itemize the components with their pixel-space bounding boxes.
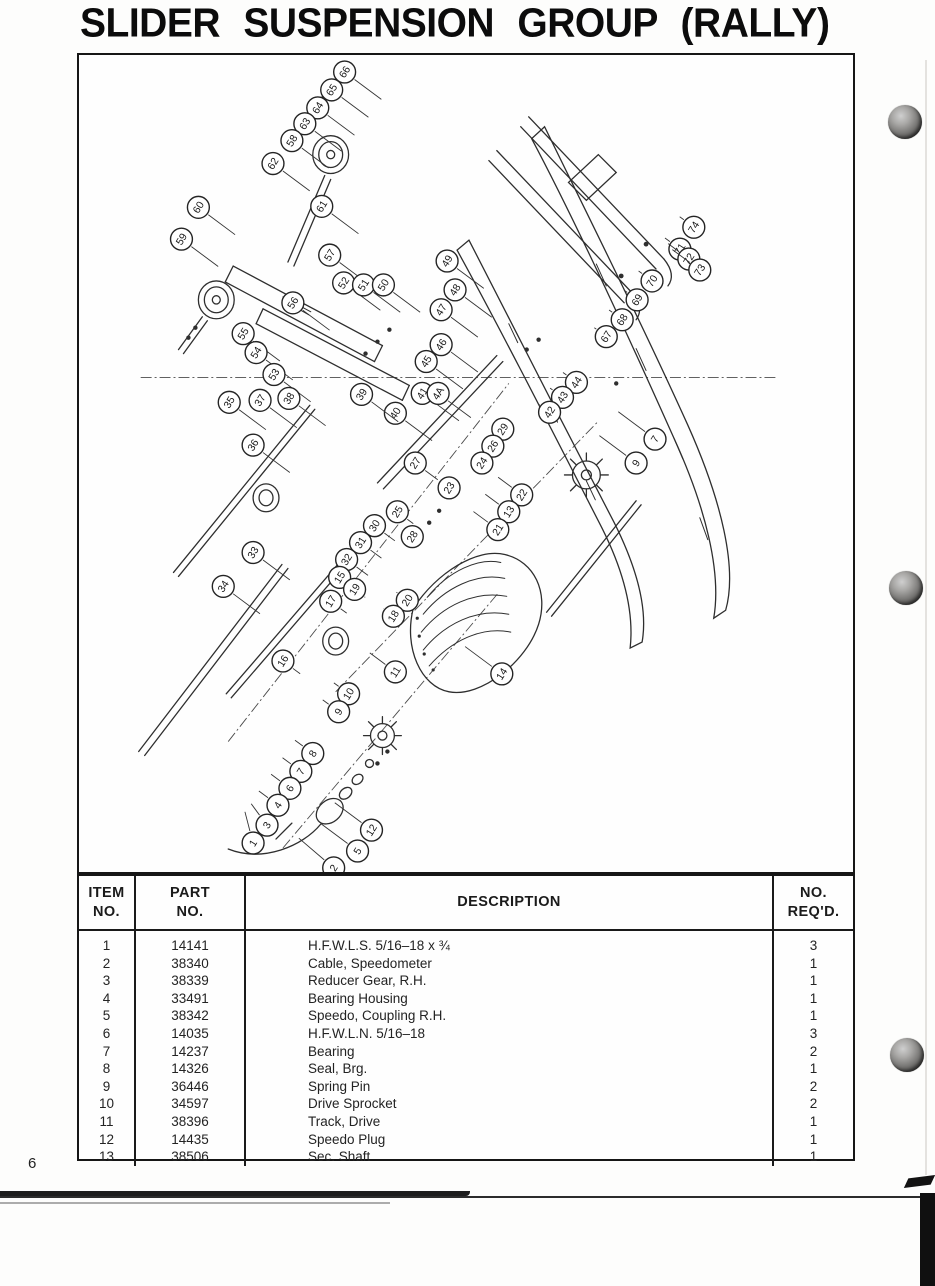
callout-leader-line (473, 512, 487, 523)
cell-req: 1 (773, 1007, 853, 1025)
cell-part: 14035 (135, 1025, 245, 1043)
callout-leader-line (239, 410, 266, 430)
cell-description: Bearing Housing (245, 990, 773, 1008)
cell-item: 8 (79, 1060, 135, 1078)
cell-item: 5 (79, 1007, 135, 1025)
table-row: 614035H.F.W.L.N. 5/16–183 (79, 1025, 853, 1043)
cell-item: 4 (79, 990, 135, 1008)
callout-leader-line (594, 328, 596, 329)
callout-leader-line (451, 352, 478, 372)
cell-req: 1 (773, 990, 853, 1008)
cell-description: Drive Sprocket (245, 1095, 773, 1113)
callout-leader-line (609, 310, 612, 312)
cell-req: 1 (773, 1113, 853, 1131)
callout-leader-line (342, 97, 369, 117)
cell-req: 2 (773, 1043, 853, 1061)
callout-leader-line (665, 238, 670, 242)
callout-leader-line (332, 214, 359, 234)
cell-description: Speedo Plug (245, 1131, 773, 1149)
callout-leader-line (299, 838, 324, 860)
callout-leader-line (263, 560, 290, 580)
table-row: 338339Reducer Gear, R.H.1 (79, 972, 853, 990)
cell-item: 12 (79, 1131, 135, 1149)
callout-leader-line (323, 700, 329, 704)
header-description: DESCRIPTION (245, 876, 773, 930)
page-title: SLIDER SUSPENSION GROUP (RALLY) (80, 1, 880, 47)
callout-leader-line (618, 412, 645, 432)
callout-leader-line (396, 592, 397, 593)
cell-req: 2 (773, 1078, 853, 1096)
cell-description: Spring Pin (245, 1078, 773, 1096)
callout-leader-line (370, 550, 381, 558)
callout-leader-line (283, 758, 291, 764)
cell-part: 38396 (135, 1113, 245, 1131)
callout-leader-line (465, 647, 492, 667)
cell-req: 2 (773, 1095, 853, 1113)
callout-leader-line (425, 470, 438, 479)
callout-leader-line (393, 292, 420, 312)
callout-leader-line (599, 436, 626, 456)
cell-req: 1 (773, 972, 853, 990)
cell-item: 9 (79, 1078, 135, 1096)
callout-leader-line (271, 774, 280, 781)
callout-leader-line (355, 79, 382, 99)
cell-part: 34597 (135, 1095, 245, 1113)
cell-item: 7 (79, 1043, 135, 1061)
callout-leader-line (245, 812, 250, 831)
cell-item: 10 (79, 1095, 135, 1113)
cell-req: 3 (773, 1025, 853, 1043)
callout-leader-line (334, 683, 339, 686)
callout-leader-line (639, 271, 642, 273)
callout-leader-line (208, 215, 235, 235)
callout-leader-line (341, 609, 347, 613)
cell-part: 36446 (135, 1078, 245, 1096)
cell-description: H.F.W.L.S. 5/16–18 x ¾ (245, 930, 773, 955)
parts-table: ITEMNO. PARTNO. DESCRIPTION NO.REQ'D. 11… (77, 874, 855, 1161)
scan-corner-bar (920, 1193, 935, 1286)
callout-leader-line (270, 408, 297, 428)
cell-part: 14141 (135, 930, 245, 955)
cell-description: Cable, Speedometer (245, 955, 773, 973)
table-row: 1214435Speedo Plug1 (79, 1131, 853, 1149)
callout-leader-line (357, 567, 368, 575)
table-row: 433491Bearing Housing1 (79, 990, 853, 1008)
scan-bottom-line (0, 1202, 390, 1204)
cell-req: 3 (773, 930, 853, 955)
exploded-diagram-svg: 6665646358626160595756555453525150494847… (79, 55, 853, 872)
table-row: 1138396Track, Drive1 (79, 1113, 853, 1131)
cell-item: 11 (79, 1113, 135, 1131)
callout-leader-line (295, 740, 303, 746)
cell-part: 33491 (135, 990, 245, 1008)
table-row: 538342Speedo, Coupling R.H.1 (79, 1007, 853, 1025)
callout-leader-line (405, 421, 432, 441)
callout-group: 6665646358626160595756555453525150494847… (171, 61, 711, 872)
page-number: 6 (28, 1155, 36, 1172)
cell-req: 1 (773, 1131, 853, 1149)
cell-part: 14326 (135, 1060, 245, 1078)
binder-hole (890, 1038, 924, 1072)
callout-leader-line (680, 217, 684, 220)
callout-leader-line (328, 115, 355, 135)
scan-bottom-line (0, 1196, 935, 1198)
callout-leader-line (293, 668, 300, 673)
callout-leader-line (407, 519, 413, 523)
page-edge-shadow (925, 60, 927, 1175)
cell-description: Speedo, Coupling R.H. (245, 1007, 773, 1025)
cell-description: Reducer Gear, R.H. (245, 972, 773, 990)
cell-req: 1 (773, 1060, 853, 1078)
callout-leader-line (451, 317, 478, 337)
cell-description: Bearing (245, 1043, 773, 1061)
callout-leader-line (303, 310, 330, 330)
assembly-axis-lines (141, 377, 776, 848)
cell-part: 14435 (135, 1131, 245, 1149)
table-row: 1034597Drive Sprocket2 (79, 1095, 853, 1113)
table-row: 114141H.F.W.L.S. 5/16–18 x ¾3 (79, 930, 853, 955)
callout-leader-line (550, 388, 552, 390)
header-part-no: PARTNO. (135, 876, 245, 930)
table-row: 238340Cable, Speedometer1 (79, 955, 853, 973)
table-row: 936446Spring Pin2 (79, 1078, 853, 1096)
callout-leader-line (485, 494, 499, 504)
callout-leader-line (335, 803, 362, 823)
table-row: 1338506Sec. Shaft1 (79, 1148, 853, 1166)
callout-leader-line (259, 791, 268, 798)
cell-part: 38506 (135, 1148, 245, 1166)
scan-artifact-mark (904, 1175, 935, 1188)
cell-description: Track, Drive (245, 1113, 773, 1131)
cell-item: 13 (79, 1148, 135, 1166)
callout-leader-line (283, 171, 310, 191)
cell-part: 38339 (135, 972, 245, 990)
cell-item: 3 (79, 972, 135, 990)
callout-leader-line (370, 653, 386, 665)
cell-req: 1 (773, 1148, 853, 1166)
cell-req: 1 (773, 955, 853, 973)
callout-leader-line (191, 247, 218, 267)
callout-leader-line (251, 804, 259, 815)
cell-part: 38342 (135, 1007, 245, 1025)
table-row: 714237Bearing2 (79, 1043, 853, 1061)
cell-part: 14237 (135, 1043, 245, 1061)
cell-description: Seal, Brg. (245, 1060, 773, 1078)
parts-table-body: 114141H.F.W.L.S. 5/16–18 x ¾3238340Cable… (79, 930, 853, 1166)
exploded-diagram-figure: 6665646358626160595756555453525150494847… (77, 53, 855, 874)
cell-item: 1 (79, 930, 135, 955)
table-row: 814326Seal, Brg.1 (79, 1060, 853, 1078)
binder-hole (888, 105, 922, 139)
cell-description: Sec. Shaft (245, 1148, 773, 1166)
cell-item: 6 (79, 1025, 135, 1043)
callout-leader-line (321, 824, 348, 844)
callout-leader-line (299, 406, 326, 426)
cell-item: 2 (79, 955, 135, 973)
header-no-reqd: NO.REQ'D. (773, 876, 853, 930)
callout-leader-line (563, 372, 566, 374)
callout-leader-line (498, 477, 512, 487)
header-item-no: ITEMNO. (79, 876, 135, 930)
binder-hole (889, 571, 923, 605)
cell-description: H.F.W.L.N. 5/16–18 (245, 1025, 773, 1043)
cell-part: 38340 (135, 955, 245, 973)
